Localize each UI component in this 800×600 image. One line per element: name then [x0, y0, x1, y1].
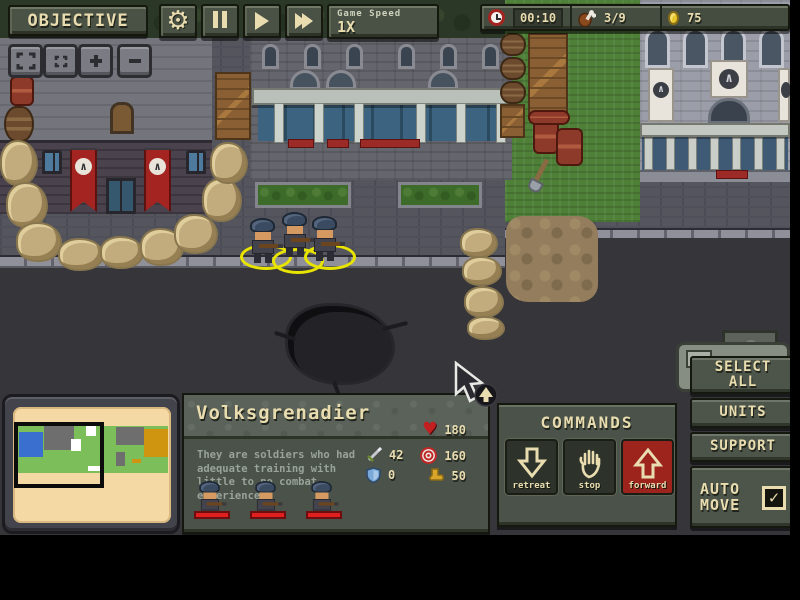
red-barrel — [10, 76, 34, 106]
stat-cost-value: 50 — [452, 469, 466, 483]
red-carpet — [716, 170, 748, 179]
white-banner-icon: ∧ — [648, 68, 674, 122]
game-viewport[interactable]: ∧ ∧ — [0, 0, 790, 535]
column — [354, 103, 364, 143]
clock-icon — [488, 9, 505, 26]
select-all-label: SELECT ALL — [708, 360, 778, 391]
screen-edge-bottom — [0, 535, 800, 600]
fallen-barrel — [528, 110, 570, 125]
forward-button[interactable]: forward — [621, 439, 674, 495]
column — [754, 137, 763, 170]
sandbag — [467, 316, 505, 340]
play-button[interactable] — [243, 4, 281, 38]
helmet — [199, 481, 220, 493]
minimap-marker — [132, 459, 141, 463]
leg — [265, 254, 272, 263]
rifle-icon — [321, 242, 345, 246]
sandbag — [6, 182, 48, 228]
crate — [500, 104, 525, 138]
column — [644, 137, 653, 170]
sword-icon — [366, 447, 382, 463]
health-bar — [194, 511, 230, 519]
wood-barrel — [500, 81, 526, 104]
stat-hp: ♥ 180 — [422, 421, 466, 438]
screen-edge-right — [790, 0, 800, 535]
auto-move-label: AUTO MOVE — [700, 481, 752, 514]
column — [416, 103, 426, 143]
banner-emblem-icon: ∧ — [653, 82, 669, 98]
plus-icon — [87, 52, 105, 70]
helmet — [282, 212, 307, 227]
sandbag — [16, 222, 62, 262]
fast-forward-icon — [302, 13, 313, 29]
minimap-building — [116, 427, 144, 445]
supply-section: 3/9 — [572, 6, 662, 29]
column — [274, 103, 284, 143]
sandbag — [460, 228, 498, 258]
support-label: SUPPORT — [710, 439, 776, 454]
building-right-door — [708, 98, 750, 124]
minimap-enemy-base — [144, 429, 168, 457]
auto-move-button[interactable]: AUTO MOVE ✓ — [690, 466, 790, 528]
game-speed-panel: Game Speed 1X — [327, 4, 439, 39]
heart-icon: ♥ — [422, 421, 437, 438]
unit-info-panel: Volksgrenadier ♥ 180 They are soldiers w… — [182, 393, 490, 534]
hedge-planter — [255, 182, 351, 208]
support-button[interactable]: SUPPORT — [690, 432, 790, 462]
arched-window — [683, 28, 708, 68]
window — [440, 44, 457, 69]
wood-barrel — [500, 57, 526, 80]
food-icon — [578, 9, 596, 27]
column — [456, 103, 466, 143]
balcony-ledge — [640, 123, 790, 137]
white-banner-icon — [778, 68, 790, 122]
leg — [327, 252, 334, 261]
zoom-expand-button[interactable] — [8, 44, 43, 78]
boot-icon — [428, 468, 445, 483]
stat-armor: 0 — [366, 467, 395, 483]
gold-section: 75 — [662, 6, 788, 29]
red-carpet — [288, 139, 314, 148]
gear-icon: ⚙ — [166, 8, 189, 34]
banner-emblem-icon: ∧ — [75, 158, 92, 175]
forward-label: forward — [629, 481, 667, 491]
column — [776, 137, 785, 170]
building-base — [640, 170, 790, 182]
arched-window — [759, 28, 784, 68]
units-button[interactable]: UNITS — [690, 398, 790, 428]
crate-stack — [528, 33, 568, 119]
banner-emblem-icon: ∧ — [719, 69, 739, 89]
arrow-up-icon — [631, 446, 665, 480]
sandbag — [210, 142, 248, 184]
wood-barrel — [500, 33, 526, 56]
white-banner-icon: ∧ — [710, 60, 748, 98]
units-label: UNITS — [719, 405, 766, 420]
column — [666, 137, 675, 170]
minimap-viewport-rect[interactable] — [14, 422, 104, 488]
colonnade-awning — [252, 88, 510, 105]
commands-title: COMMANDS — [499, 413, 675, 432]
stat-range: 160 — [420, 447, 466, 464]
wood-barrel — [4, 106, 34, 142]
zoom-in-button[interactable] — [78, 44, 113, 78]
rifle-icon — [319, 502, 339, 505]
expand-icon — [16, 52, 36, 70]
timer-value: 00:10 — [513, 8, 563, 28]
unit-name: Volksgrenadier — [196, 402, 370, 424]
window — [42, 150, 62, 174]
game-speed-value: 1X — [337, 18, 429, 36]
rifle-icon — [263, 502, 283, 505]
arched-window — [290, 70, 320, 90]
retreat-button[interactable]: retreat — [505, 439, 558, 495]
mouse-cursor-icon — [450, 360, 502, 412]
select-all-button[interactable]: SELECT ALL — [690, 356, 790, 394]
helmet — [255, 481, 276, 493]
stop-button[interactable]: stop — [563, 439, 616, 495]
health-bar — [250, 511, 286, 519]
game-screen: ∧ ∧ — [0, 0, 800, 600]
arched-window — [428, 70, 458, 90]
attic-window — [110, 102, 134, 134]
pause-icon — [211, 11, 229, 32]
gold-count: 75 — [687, 11, 701, 25]
stat-attack-value: 42 — [389, 448, 403, 462]
stat-hp-value: 180 — [444, 423, 466, 437]
stop-hand-icon — [573, 446, 607, 482]
unit-volksgrenadier[interactable] — [278, 212, 312, 258]
stat-attack: 42 — [366, 447, 403, 463]
banner-emblem-icon: ∧ — [149, 158, 166, 175]
unit-volksgrenadier[interactable] — [246, 218, 280, 264]
column — [710, 137, 719, 170]
hedge-planter — [398, 182, 482, 208]
timer-section: 00:10 — [482, 6, 572, 29]
supply-count: 3/9 — [604, 11, 626, 25]
leg — [297, 248, 304, 257]
auto-move-checkbox[interactable]: ✓ — [762, 486, 786, 510]
shield-icon — [366, 467, 381, 483]
commands-panel: COMMANDS retreat stop — [497, 403, 677, 527]
window — [304, 44, 321, 69]
helmet — [312, 216, 337, 231]
sandbag — [202, 178, 242, 222]
leg — [316, 252, 323, 261]
storefront-glass — [258, 105, 504, 141]
zoom-out-button[interactable] — [117, 44, 152, 78]
window — [186, 150, 206, 174]
health-bar — [306, 511, 342, 519]
minimap-building — [116, 452, 125, 466]
leg — [254, 254, 261, 263]
sandbag — [464, 286, 504, 318]
check-icon: ✓ — [769, 488, 779, 508]
arched-window — [645, 28, 670, 68]
grass-area — [505, 0, 640, 222]
stop-label: stop — [579, 481, 601, 491]
window — [262, 44, 279, 69]
coin-icon — [668, 11, 679, 25]
building-left-door — [106, 178, 136, 214]
stat-cost: 50 — [428, 468, 466, 483]
minus-icon — [126, 52, 144, 70]
target-icon — [420, 447, 437, 464]
column — [314, 103, 324, 143]
banner-emblem-icon — [781, 82, 790, 98]
arrow-down-icon — [515, 446, 549, 480]
red-carpet — [327, 139, 349, 148]
window — [346, 44, 363, 69]
helmet — [311, 481, 332, 493]
zoom-shrink-button[interactable] — [43, 44, 78, 78]
sandbag — [0, 140, 38, 186]
helmet — [250, 218, 275, 233]
pause-button[interactable] — [201, 4, 239, 38]
retreat-label: retreat — [513, 481, 551, 491]
column — [688, 137, 697, 170]
play-icon — [255, 12, 269, 30]
fast-forward-button[interactable] — [285, 4, 323, 38]
column — [732, 137, 741, 170]
minimap-paper — [13, 407, 171, 523]
unit-volksgrenadier[interactable] — [308, 216, 342, 262]
leg — [286, 248, 293, 257]
window — [482, 44, 499, 69]
resource-bar: 00:10 3/9 75 — [480, 4, 790, 31]
settings-button[interactable]: ⚙ — [159, 4, 197, 38]
window — [398, 44, 415, 69]
building-center — [250, 38, 512, 180]
minimap[interactable] — [2, 394, 180, 534]
red-barrel — [556, 128, 583, 166]
rifle-icon — [207, 502, 227, 505]
dirt-patch — [506, 216, 598, 302]
arched-window — [326, 70, 356, 90]
sandbag — [58, 238, 104, 271]
red-carpet — [360, 139, 420, 148]
stat-armor-value: 0 — [388, 468, 395, 482]
sandbag — [462, 256, 502, 286]
objective-button[interactable]: OBJECTIVE — [8, 5, 148, 36]
stat-range-value: 160 — [444, 449, 466, 463]
sandbag — [100, 236, 144, 269]
shrink-icon — [54, 55, 68, 68]
crate-stack — [215, 72, 251, 140]
objective-label: OBJECTIVE — [27, 11, 128, 31]
